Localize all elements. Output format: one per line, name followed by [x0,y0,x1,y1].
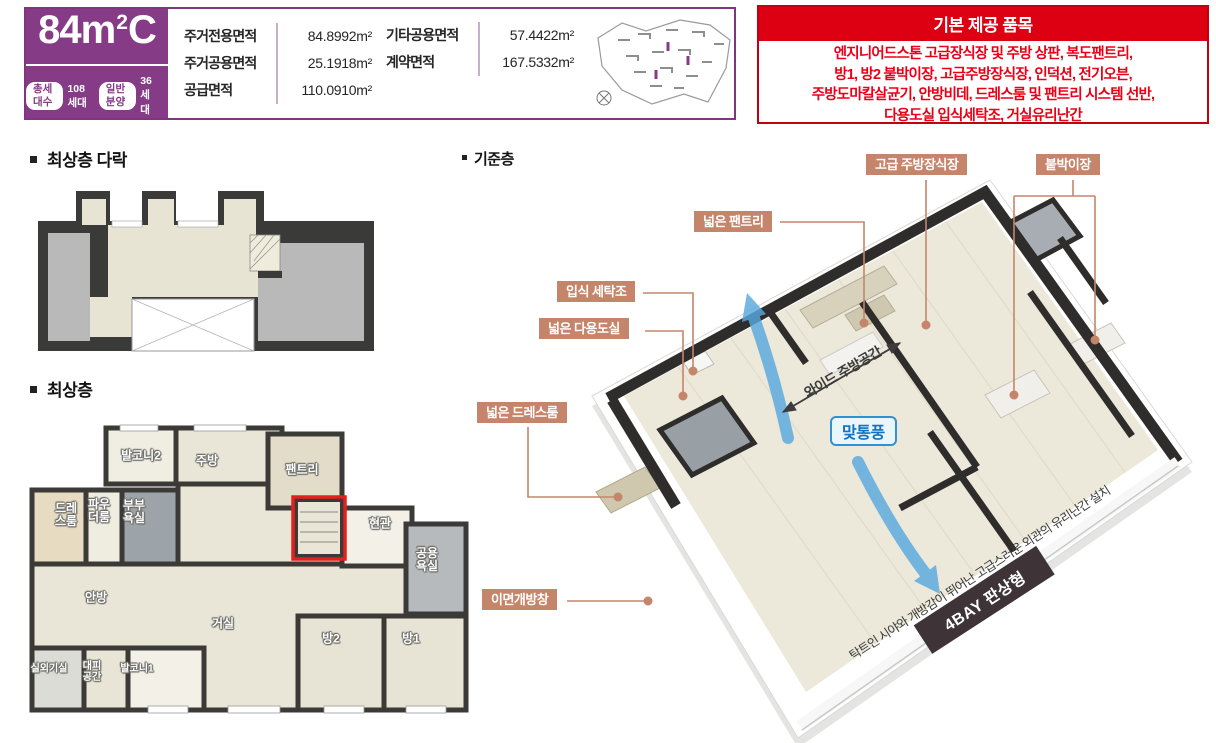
room-label-kitchen: 주방 [196,455,218,468]
stat-general-sale-value: 36세대 [140,75,159,117]
area-label: 기타공용면적 [386,22,478,49]
provided-items-body: 엔지니어드스톤 고급장식장 및 주방 상판, 복도팬트리, 방1, 방2 붙박이… [759,41,1207,127]
area-value: 167.5332m² [478,49,574,76]
stat-total-households-value: 108세대 [67,83,89,110]
callout-wide-pantry: 넓은 팬트리 [694,211,772,232]
room-label-livingroom: 거실 [212,618,234,631]
title-divider [26,64,168,66]
unit-size-unit: m [81,8,116,52]
area-col-1: 주거전용면적84.8992m² 주거공용면적25.1918m² 공급면적110.… [184,23,372,104]
unit-title: 84m2C [38,10,156,57]
area-row: 기타공용면적57.4422m² [386,22,574,49]
compass-icon [597,91,611,105]
site-map [588,16,740,112]
unit-size-number: 84 [38,8,81,52]
room-label-pantry: 팬트리 [285,464,318,477]
unit-type-panel: 84m2C 총세대수 108세대 일반분양 36세대 [26,9,168,118]
callout-kitchen-cabinet: 고급 주방장식장 [866,154,967,175]
attic-section-title: 최상층 다락 [30,146,127,171]
room-label-balcony1: 발코니1 [120,664,153,675]
provided-items-box: 기본 제공 품목 엔지니어드스톤 고급장식장 및 주방 상판, 복도팬트리, 방… [757,5,1209,124]
room-label-balcony2: 발코니2 [121,450,161,463]
room-label-powderroom: 파우 더룸 [88,498,110,524]
brochure-page: { "unit": { "size_num": "84", "size_mid"… [0,0,1216,743]
area-label: 공급면적 [184,77,276,104]
room-label-entrance: 현관 [369,518,391,531]
top-floor-plan [28,420,470,738]
callout-utility-room: 넓은 다용도실 [539,318,629,339]
room-label-dressroom: 드레 스룸 [55,502,77,528]
callout-open-window: 이면개방창 [482,589,557,610]
top-floor-stair [296,500,342,556]
area-value: 84.8992m² [276,23,372,50]
unit-type-letter: C [128,8,156,52]
callout-laundry-tub: 입식 세탁조 [557,281,635,302]
callout-dress-room: 넓은 드레스룸 [477,402,567,423]
room-label-masterbath: 부부 욕실 [123,499,145,525]
area-label: 주거전용면적 [184,23,276,50]
attic-floor-plan [28,177,380,359]
area-row: 주거전용면적84.8992m² [184,23,372,50]
stat-general-sale-label: 일반분양 [99,82,136,110]
area-value: 25.1918m² [276,50,372,77]
stat-total-households-label: 총세대수 [26,82,63,110]
cross-ventilation-badge: 맞통풍 [830,416,897,446]
top-floor-section-title: 최상층 [30,376,92,401]
room-label-evacuation: 대피 공간 [83,661,101,683]
area-table: 주거전용면적84.8992m² 주거공용면적25.1918m² 공급면적110.… [168,9,746,118]
area-label: 주거공용면적 [184,50,276,77]
room-label-room1: 방1 [402,633,420,646]
provided-items-title: 기본 제공 품목 [759,7,1207,41]
room-label-masterbedroom: 안방 [85,592,107,605]
attic-open-void [132,299,254,351]
room-label-room2: 방2 [322,633,340,646]
area-value: 110.0910m² [276,77,372,104]
area-value: 57.4422m² [478,22,574,49]
area-row: 계약면적167.5332m² [386,49,574,76]
room-label-outdoorunit: 실외기실 [31,664,68,675]
unit-header: 84m2C 총세대수 108세대 일반분양 36세대 주거전용면적84.8992… [24,7,736,120]
area-label: 계약면적 [386,49,478,76]
unit-size-superscript: 2 [116,11,127,34]
callout-builtin-closet: 붙박이장 [1036,154,1100,175]
unit-stats: 총세대수 108세대 일반분양 36세대 [26,75,168,117]
area-row: 주거공용면적25.1918m² [184,50,372,77]
area-row: 공급면적110.0910m² [184,77,372,104]
area-col-2: 기타공용면적57.4422m² 계약면적167.5332m² [386,22,574,76]
room-label-commonbath: 공용 욕실 [416,547,438,573]
